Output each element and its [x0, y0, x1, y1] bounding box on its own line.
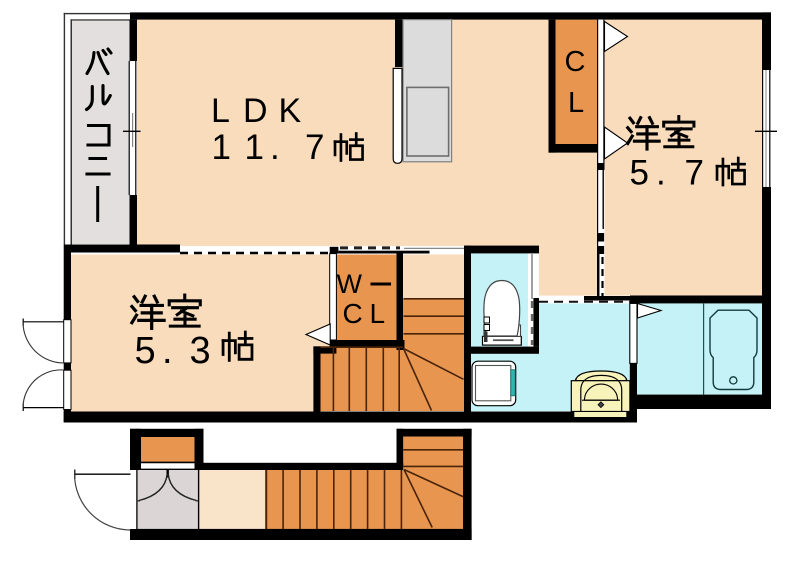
svg-text:K: K: [279, 92, 302, 130]
svg-text:L: L: [211, 92, 230, 130]
svg-text:7: 7: [305, 128, 324, 167]
svg-text:3: 3: [190, 330, 211, 372]
svg-text:.: .: [656, 154, 666, 193]
svg-text:L: L: [568, 87, 584, 119]
svg-text:1: 1: [212, 128, 231, 167]
svg-text:1: 1: [245, 128, 264, 167]
svg-text:.: .: [162, 330, 173, 372]
svg-text:5: 5: [135, 330, 156, 372]
svg-text:C: C: [343, 298, 363, 329]
svg-text:W: W: [337, 269, 363, 299]
svg-text:L: L: [370, 298, 386, 329]
svg-text:C: C: [565, 46, 586, 78]
svg-text:7: 7: [685, 154, 704, 193]
svg-text:5: 5: [630, 154, 649, 193]
svg-text:D: D: [243, 92, 268, 130]
svg-text:.: .: [270, 128, 280, 167]
